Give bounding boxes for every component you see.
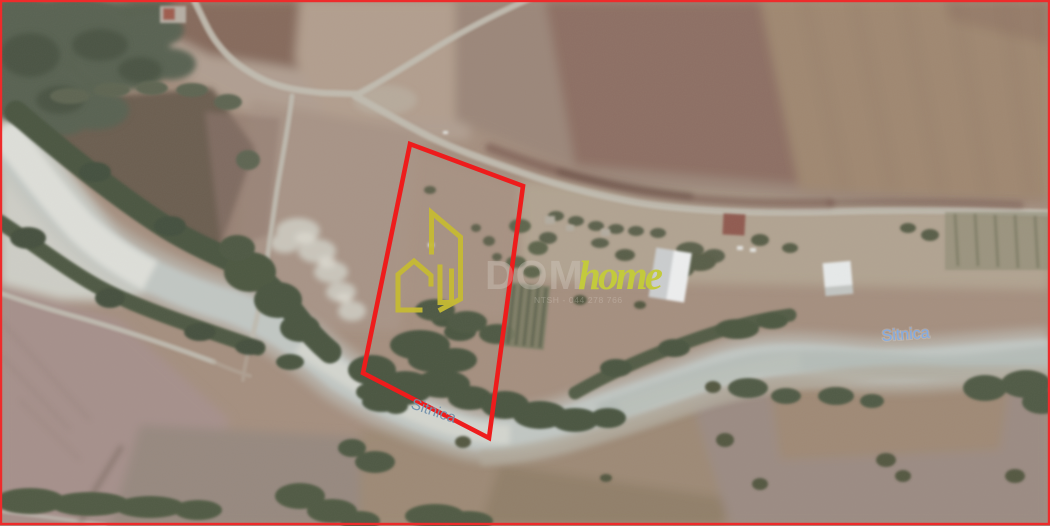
svg-text:DOM: DOM	[485, 252, 584, 298]
svg-text:Sitnica: Sitnica	[881, 325, 930, 345]
svg-text:home: home	[578, 252, 663, 298]
svg-text:NTSH - 044 278 766: NTSH - 044 278 766	[534, 295, 623, 305]
